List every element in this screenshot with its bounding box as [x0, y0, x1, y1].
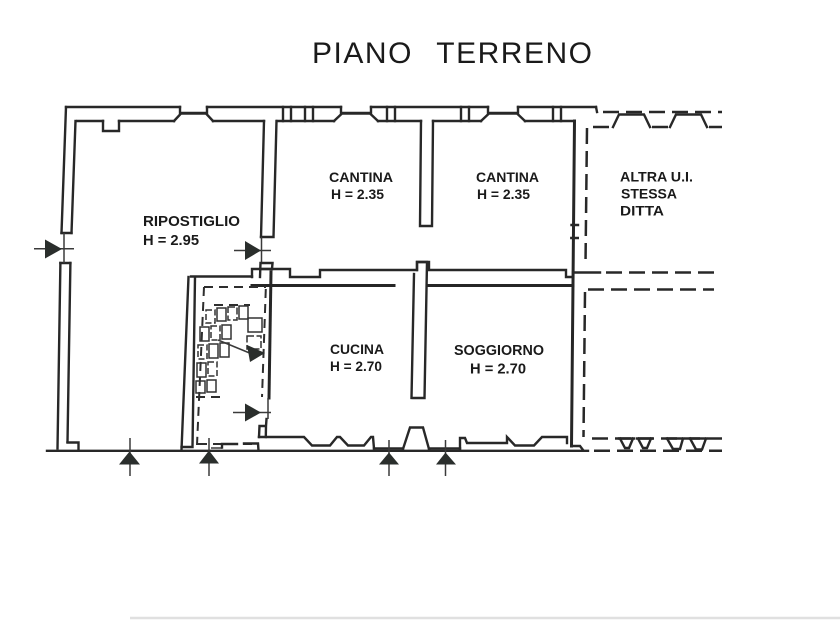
svg-text:CANTINA: CANTINA [329, 170, 393, 186]
svg-text:H = 2.95: H = 2.95 [143, 233, 199, 249]
svg-text:ALTRA U.I.: ALTRA U.I. [620, 169, 693, 185]
svg-text:STESSA: STESSA [621, 186, 677, 202]
svg-text:RIPOSTIGLIO: RIPOSTIGLIO [143, 213, 240, 230]
svg-text:H = 2.70: H = 2.70 [330, 358, 382, 374]
svg-text:CANTINA: CANTINA [476, 170, 539, 186]
svg-text:DITTA: DITTA [620, 203, 664, 219]
svg-text:CUCINA: CUCINA [330, 341, 384, 357]
svg-text:H = 2.35: H = 2.35 [331, 187, 384, 203]
svg-text:SOGGIORNO: SOGGIORNO [454, 343, 544, 359]
svg-text:H = 2.70: H = 2.70 [470, 362, 526, 378]
svg-text:PIANO TERRENO: PIANO TERRENO [312, 37, 597, 70]
svg-text:H = 2.35: H = 2.35 [477, 187, 530, 203]
